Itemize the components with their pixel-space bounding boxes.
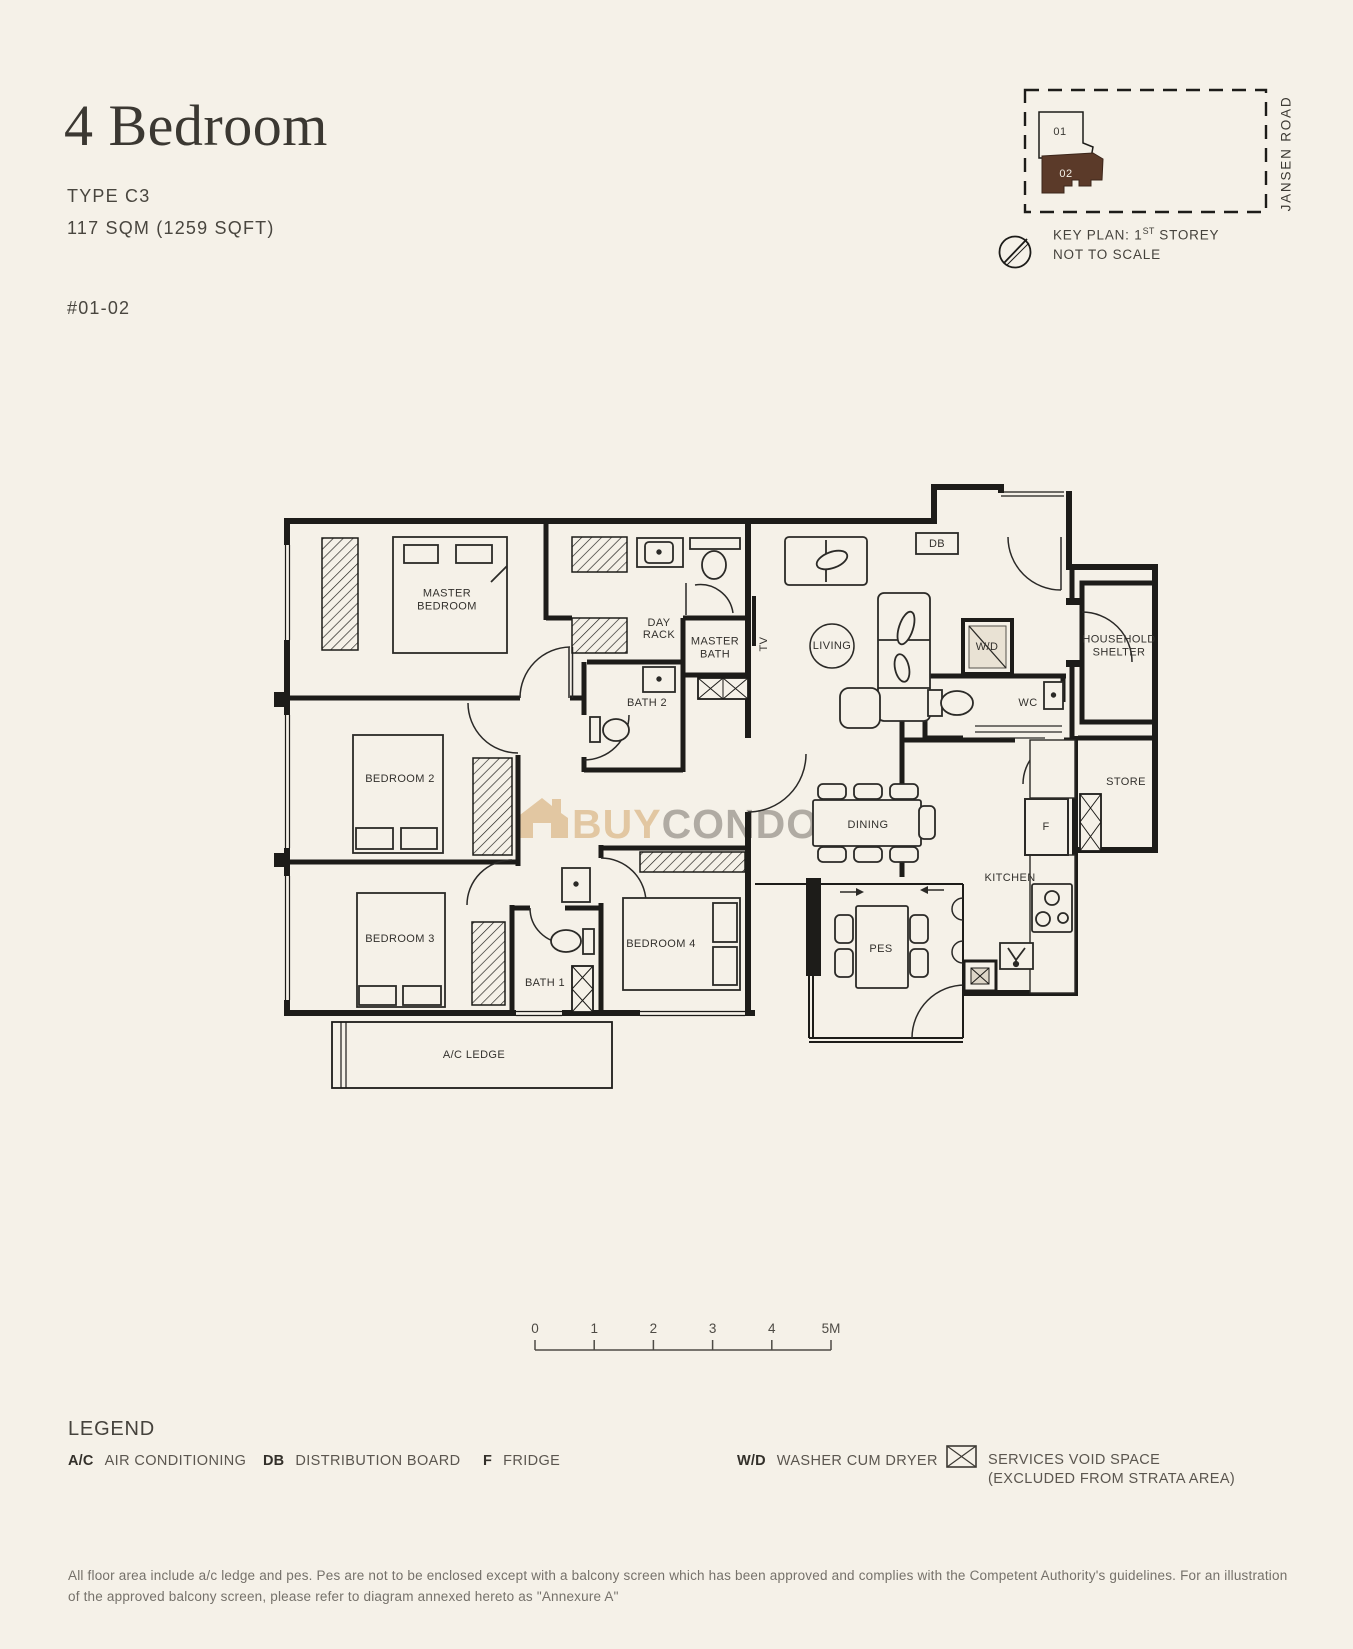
wardrobe-bedroom2 <box>473 758 512 855</box>
key-plan-unit-01-label: 01 <box>1053 126 1066 138</box>
unit-type: TYPE C3 <box>67 186 150 207</box>
wardrobe-closet-bottom <box>572 618 627 653</box>
room-label-kitchen: KITCHEN <box>984 872 1035 884</box>
wardrobe-master <box>322 538 358 650</box>
room-label-db: DB <box>929 538 945 550</box>
room-label-tv: TV <box>758 636 770 651</box>
bedroom2-door <box>468 703 518 753</box>
mbath-toilet-tank <box>690 538 740 549</box>
legend-item-fridge: FFRIDGE <box>483 1453 560 1469</box>
scale-tick-label: 3 <box>709 1321 717 1336</box>
floor-plan: BUYCONDO.sg <box>274 487 1158 1088</box>
legend-item-db: DBDISTRIBUTION BOARD <box>263 1453 460 1469</box>
watermark-prefix: BUY <box>572 801 662 847</box>
wardrobe-bedroom3 <box>472 922 505 1005</box>
room-label-master-bedroom: MASTERBEDROOM <box>417 588 477 613</box>
wc-vanity <box>975 726 1062 738</box>
legend-label: WASHER CUM DRYER <box>777 1453 938 1469</box>
legend-title: LEGEND <box>68 1418 155 1441</box>
legend-void-line1: SERVICES VOID SPACE <box>988 1451 1235 1470</box>
bath2-toilet-bowl <box>603 719 629 741</box>
disclaimer-text: All floor area include a/c ledge and pes… <box>68 1566 1296 1608</box>
room-label-wd: W/D <box>976 641 999 653</box>
scale-tick-label: 0 <box>531 1321 539 1336</box>
pes-gate <box>912 985 965 1038</box>
bath1-toilet-bowl <box>551 930 581 952</box>
room-label-bath-1: BATH 1 <box>525 977 565 989</box>
room-label-dining: DINING <box>848 819 889 831</box>
room-label-household-shelter: HOUSEHOLDSHELTER <box>1082 634 1155 659</box>
room-label-pes: PES <box>869 943 892 955</box>
room-label-living: LIVING <box>813 640 851 652</box>
wardrobe-bedroom4 <box>640 852 745 872</box>
pes-bifold-doors <box>952 898 963 963</box>
room-label-wc: WC <box>1018 697 1037 709</box>
master-bath-door <box>686 583 733 615</box>
room-label-bedroom-3: BEDROOM 3 <box>365 933 435 945</box>
key-plan-unit-02-label: 02 <box>1059 168 1072 180</box>
legend-abbr: DB <box>263 1453 284 1469</box>
tv-console <box>752 596 756 646</box>
page-title: 4 Bedroom <box>64 92 328 159</box>
legend-abbr: W/D <box>737 1453 766 1469</box>
room-label-bedroom-2: BEDROOM 2 <box>365 773 435 785</box>
house-icon <box>516 798 568 838</box>
wc-toilet-bowl <box>941 691 973 715</box>
unit-number: #01-02 <box>67 298 130 319</box>
unit-area: 117 SQM (1259 SQFT) <box>67 218 275 239</box>
scale-tick-label: 2 <box>650 1321 658 1336</box>
room-label-bath-2: BATH 2 <box>627 697 667 709</box>
room-label-master-bath: MASTERBATH <box>691 636 739 661</box>
kitchen-counter-top <box>1030 740 1075 798</box>
legend-item-ac: A/CAIR CONDITIONING <box>68 1453 246 1469</box>
north-arrow-icon <box>1000 237 1031 268</box>
legend-label: AIR CONDITIONING <box>105 1453 247 1469</box>
mbath-toilet-bowl <box>702 551 726 579</box>
key-plan-caption: KEY PLAN: 1ST STOREY <box>1053 226 1219 243</box>
legend-void-line2: (EXCLUDED FROM STRATA AREA) <box>988 1470 1235 1489</box>
legend-item-services-void: SERVICES VOID SPACE (EXCLUDED FROM STRAT… <box>988 1451 1235 1489</box>
entrance-door <box>1008 537 1061 590</box>
bath1-toilet-tank <box>583 929 594 954</box>
legend-item-wd: W/DWASHER CUM DRYER <box>737 1453 938 1469</box>
wc-toilet-tank <box>928 690 942 716</box>
legend-label: FRIDGE <box>503 1453 560 1469</box>
legend-abbr: F <box>483 1453 492 1469</box>
wardrobe-closet-top <box>572 537 627 572</box>
bedroom3-door <box>467 860 512 905</box>
services-void-icon <box>947 1446 976 1467</box>
entrance-threshold <box>1001 492 1064 496</box>
scale-tick-label: 4 <box>768 1321 776 1336</box>
room-label-bedroom-4: BEDROOM 4 <box>626 938 696 950</box>
legend-label: DISTRIBUTION BOARD <box>295 1453 460 1469</box>
room-label-ac-ledge: A/C LEDGE <box>443 1049 505 1061</box>
room-label-fridge: F <box>1042 821 1049 833</box>
pes-column <box>806 878 821 976</box>
key-plan-scale-note: NOT TO SCALE <box>1053 247 1161 262</box>
room-label-store: STORE <box>1106 776 1146 788</box>
room-label-day-rack: DAYRACK <box>643 617 675 641</box>
master-suite-door <box>520 647 573 698</box>
road-label: JANSEN ROAD <box>1279 84 1294 224</box>
scale-tick-label: 1 <box>590 1321 598 1336</box>
legend-abbr: A/C <box>68 1453 94 1469</box>
bath2-toilet-tank <box>590 717 600 742</box>
scale-bar: 012345M <box>531 1321 840 1350</box>
scale-tick-label: 5M <box>822 1321 841 1336</box>
